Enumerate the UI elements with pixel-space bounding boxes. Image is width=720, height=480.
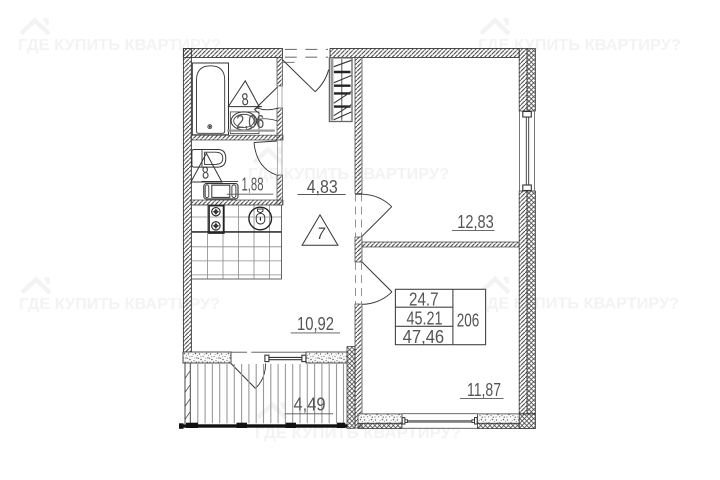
svg-text:24.7: 24.7 — [409, 288, 439, 309]
svg-text:7: 7 — [317, 224, 325, 243]
svg-text:1,88: 1,88 — [242, 174, 264, 195]
svg-text:4,49: 4,49 — [294, 394, 326, 415]
svg-text:10,92: 10,92 — [297, 313, 334, 334]
svg-text:ГДЕ КУПИТЬ КВАРТИРУ?: ГДЕ КУПИТЬ КВАРТИРУ? — [478, 296, 679, 313]
svg-text:12,83: 12,83 — [457, 211, 494, 232]
svg-text:11,87: 11,87 — [467, 379, 501, 400]
svg-text:206: 206 — [457, 309, 480, 330]
svg-text:47,46: 47,46 — [403, 326, 445, 347]
svg-text:2,06: 2,06 — [236, 111, 264, 132]
svg-text:4,83: 4,83 — [307, 176, 338, 197]
